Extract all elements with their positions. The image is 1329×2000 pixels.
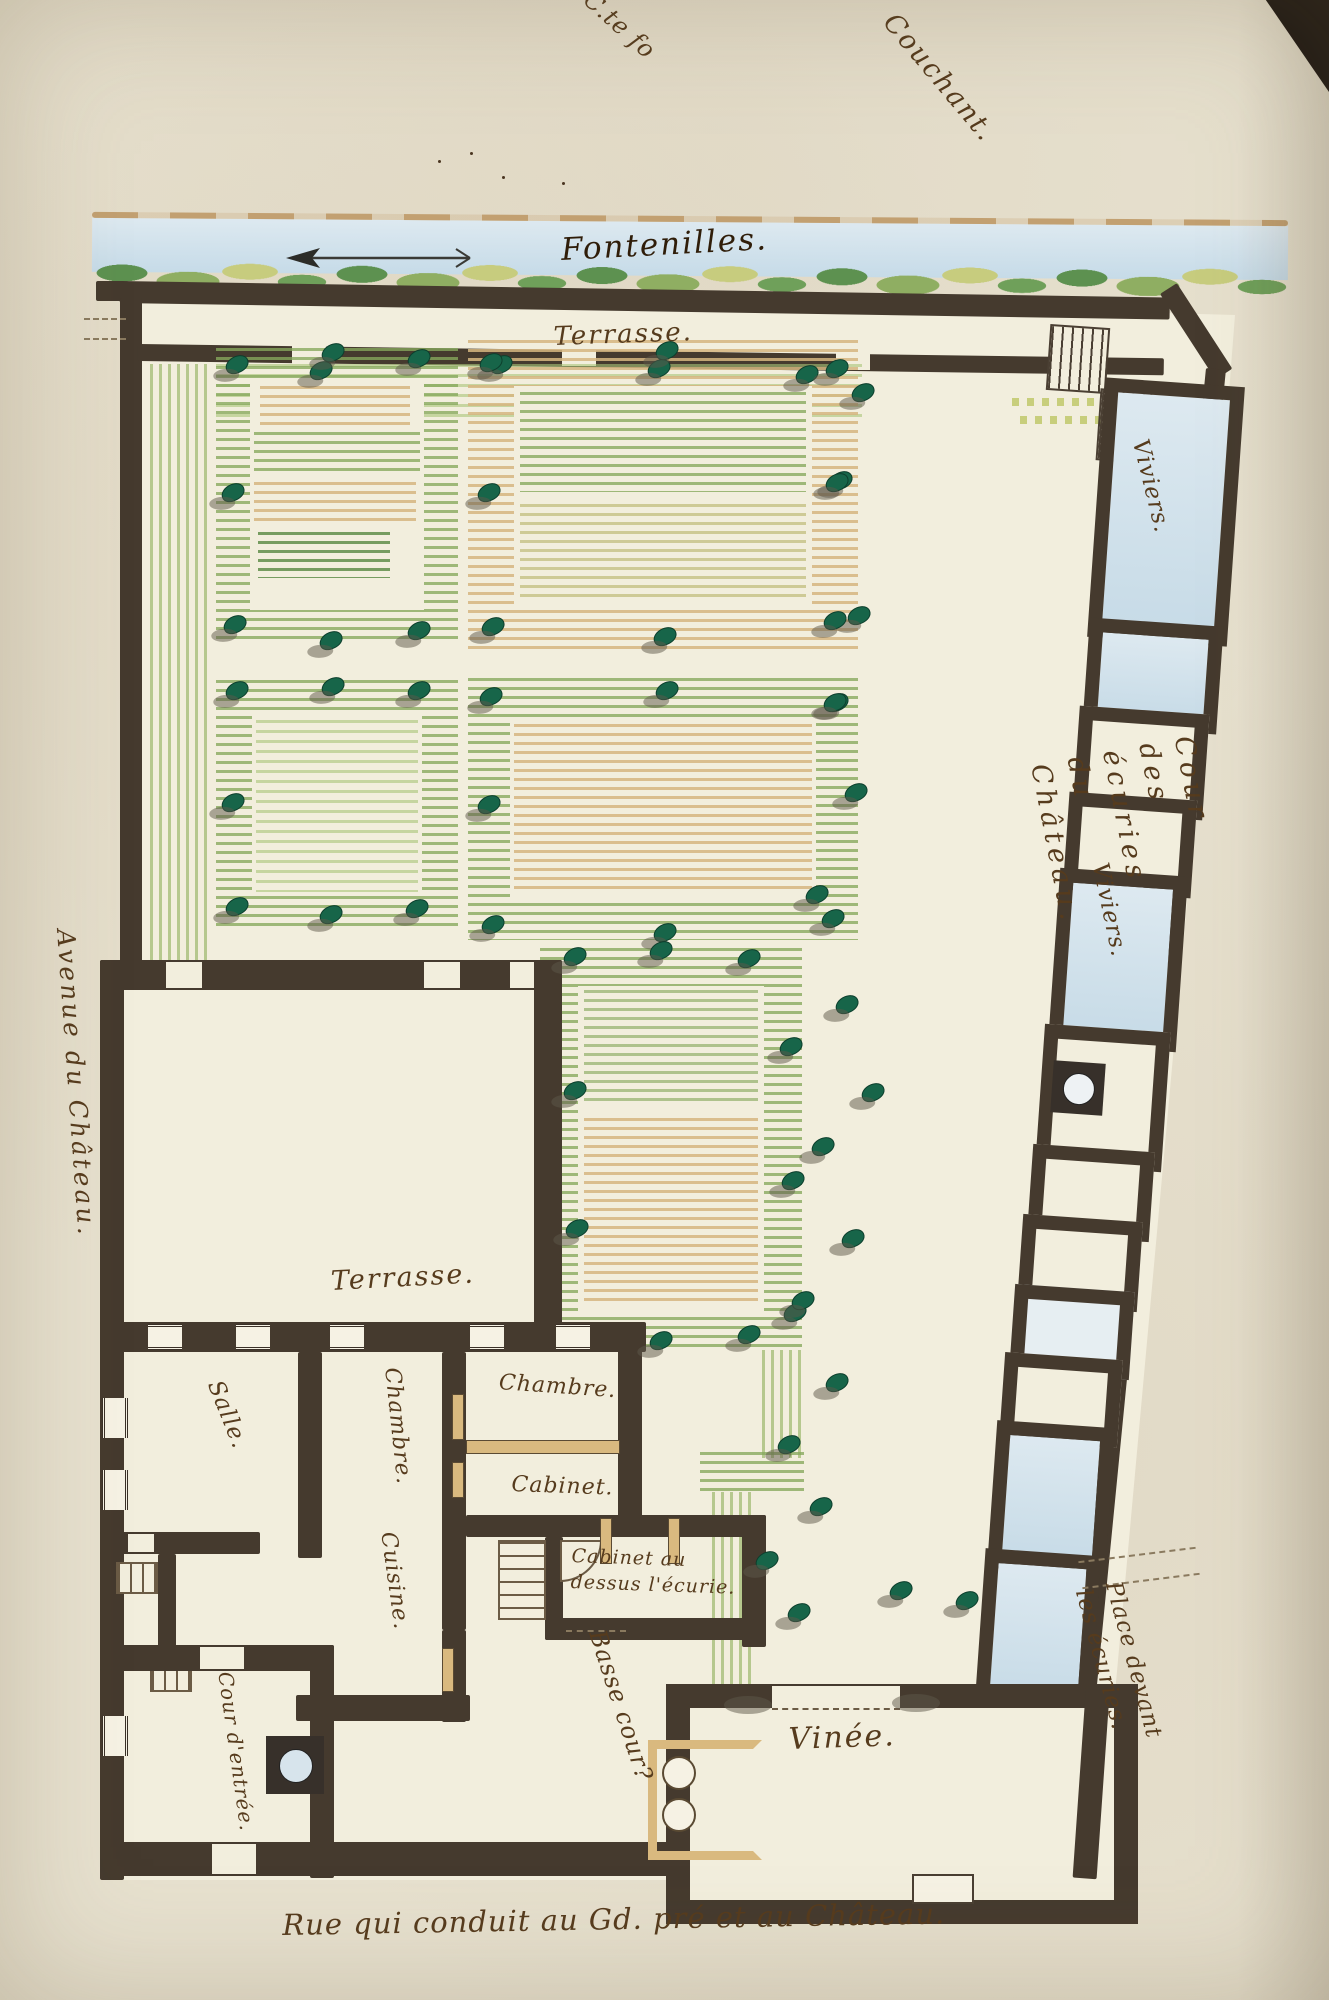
- window: [556, 1324, 590, 1350]
- label-rue: Rue qui conduit au Gd. pré et au Château…: [282, 1894, 946, 1945]
- gate-dashes: [84, 318, 126, 320]
- wood-partition: [466, 1440, 620, 1454]
- label-cour-ecuries: Cour des écuries du Château.: [1021, 733, 1231, 928]
- ink-dot: [502, 176, 505, 179]
- wide-opening: [772, 1686, 900, 1710]
- parterre-1: [216, 348, 458, 644]
- label-couchant: Couchant.: [874, 6, 1003, 150]
- label-cabinet-ecurie: Cabinet au dessus l'écurie.: [570, 1544, 737, 1601]
- west-arrow-icon: [268, 238, 478, 278]
- ink-smudge: [892, 1694, 940, 1712]
- stair-icon: [116, 1562, 158, 1594]
- well-hole: [279, 1749, 313, 1783]
- window: [102, 1716, 128, 1756]
- ink-dot: [562, 182, 565, 185]
- door-jamb: [452, 1394, 464, 1440]
- bridge-hatch: [1046, 324, 1110, 394]
- basin-icon: [662, 1756, 696, 1790]
- wall-segment: [100, 1532, 260, 1554]
- parterre-1-core: [250, 382, 424, 610]
- label-cabinet: Cabinet.: [511, 1470, 614, 1503]
- window: [330, 1324, 364, 1350]
- wall-segment: [158, 1554, 176, 1649]
- manuscript-plan-page: C.te fo Couchant. Fontenilles. Terrasse.…: [0, 0, 1329, 2000]
- bed-strip: [584, 1118, 758, 1306]
- label-terrasse-haut: Terrasse.: [553, 315, 694, 355]
- label-terrasse-bas: Terrasse.: [330, 1256, 476, 1300]
- parterre-4: [468, 678, 858, 940]
- wall-segment: [618, 1322, 642, 1522]
- door-jamb: [452, 1462, 464, 1498]
- label-avenue: Avenue du Château.: [48, 928, 103, 1238]
- door-gap: [128, 1534, 154, 1552]
- parterre-4-core: [510, 720, 816, 898]
- wall-segment: [534, 960, 562, 1334]
- shed-outline: [648, 1740, 762, 1860]
- bed-strip: [254, 482, 416, 526]
- parterre-3-core: [252, 716, 422, 896]
- wall-segment: [545, 1618, 766, 1640]
- gate-gap: [212, 1844, 256, 1874]
- parterre-3: [216, 680, 458, 932]
- bed-strip: [520, 504, 806, 600]
- garden-band: [762, 1350, 802, 1458]
- door-gap: [424, 962, 460, 988]
- window: [102, 1398, 128, 1438]
- corner-fragment-note: C.te fo: [576, 0, 662, 66]
- gate-gap: [200, 1647, 244, 1669]
- bed-strip: [260, 386, 410, 426]
- parterre-2-core: [514, 386, 812, 606]
- parterre-2: [468, 340, 858, 652]
- ink-smudge: [724, 1696, 772, 1714]
- bed-strip: [514, 724, 812, 894]
- parterre-5: [540, 948, 802, 1350]
- ink-dot: [470, 152, 473, 155]
- left-allee-band: [150, 364, 212, 964]
- garden-band: [700, 1452, 804, 1492]
- door-gap: [166, 962, 202, 988]
- wall-segment: [298, 1352, 322, 1558]
- window: [470, 1324, 504, 1350]
- wall-segment: [120, 298, 142, 966]
- well-icon: [1050, 1060, 1106, 1116]
- window: [102, 1470, 128, 1510]
- bed-strip: [254, 432, 420, 476]
- bed-strip: [520, 392, 806, 492]
- window: [236, 1324, 270, 1350]
- door-gap: [920, 1850, 964, 1874]
- door-jamb: [442, 1648, 454, 1692]
- ink-dot: [438, 160, 441, 163]
- window: [148, 1324, 182, 1350]
- well-icon: [266, 1736, 324, 1794]
- stair-icon: [498, 1540, 546, 1620]
- well-hole: [1062, 1072, 1096, 1106]
- parterre-5-core: [578, 986, 764, 1312]
- gate-dashes: [84, 338, 126, 340]
- label-vinee: Vinée.: [788, 1716, 896, 1760]
- bed-strip: [584, 990, 758, 1106]
- wall-segment: [466, 1515, 766, 1537]
- basin-icon: [662, 1798, 696, 1832]
- planting-dots: [1012, 398, 1112, 406]
- bed-strip: [258, 532, 390, 578]
- page-edge-shading: [1237, 0, 1329, 2000]
- bed-strip: [256, 720, 418, 892]
